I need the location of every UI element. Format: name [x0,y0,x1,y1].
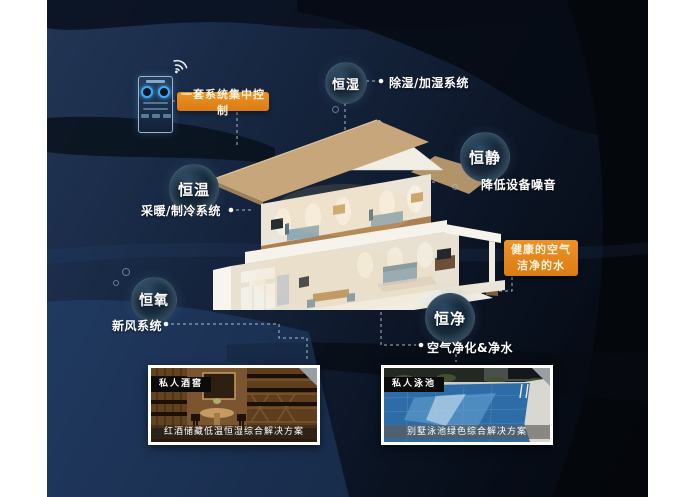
panel-readout-row [143,108,168,110]
panel-title-bar [146,80,165,83]
pool-caption: 别墅泳池绿色综合解决方案 [384,425,550,439]
corner-ribbon-icon [299,368,317,386]
central-control-callout: 一套系统集中控制 [177,92,269,111]
control-knob-icon [141,86,153,98]
deco-bubble [122,268,130,276]
panel-button-icon [141,114,149,118]
wine-cellar-tag: 私人酒窖 [151,377,211,392]
control-knob-icon [158,86,170,98]
panel-button-icon [163,114,171,118]
clean-water-line: 洁净的水 [517,258,565,274]
healthy-air-water-callout: 健康的空气 洁净的水 [504,240,578,276]
wine-cellar-caption: 红酒储藏低温恒湿综合解决方案 [151,425,317,439]
label-heating-cooling-system: 采暖/制冷系统 [141,202,221,219]
wall-control-panel [138,76,173,133]
deco-bubble [452,184,458,190]
central-control-label: 一套系统集中控制 [177,86,269,118]
bubble-title: 恒净 [434,308,466,329]
panel-readout-row [143,102,168,104]
bubble-title: 恒静 [469,147,501,168]
deco-bubble [332,106,339,113]
smart-home-infographic: 一套系统集中控制 健康的空气 洁净的水 恒湿 恒静 恒温 恒氧 恒净 除湿/加湿… [0,0,700,497]
pool-photo: 私人泳池 别墅泳池绿色综合解决方案 [384,368,550,442]
bubble-constant-quiet: 恒静 [460,132,510,182]
pool-card: 私人泳池 别墅泳池绿色综合解决方案 [381,365,553,445]
label-dehumidify-system: 除湿/加湿系统 [389,74,469,91]
deco-bubble [113,280,119,286]
bubble-title: 恒温 [178,179,210,200]
bubble-title: 恒氧 [139,290,169,310]
bubble-constant-clean: 恒净 [425,293,475,343]
label-fresh-air-system: 新风系统 [112,317,162,334]
bubble-title: 恒湿 [332,74,360,93]
pool-tag: 私人泳池 [384,377,444,392]
healthy-air-line: 健康的空气 [511,242,571,258]
wine-cellar-card: 私人酒窖 红酒储藏低温恒湿综合解决方案 [148,365,320,445]
bubble-constant-humidity: 恒湿 [325,62,367,104]
label-noise-reduction: 降低设备噪音 [481,176,556,193]
panel-button-icon [152,114,160,118]
house-cutaway-illustration [195,110,505,310]
label-air-water-purification: 空气净化&净水 [427,339,513,356]
wine-cellar-photo: 私人酒窖 红酒储藏低温恒湿综合解决方案 [151,368,317,442]
corner-ribbon-icon [532,368,550,386]
